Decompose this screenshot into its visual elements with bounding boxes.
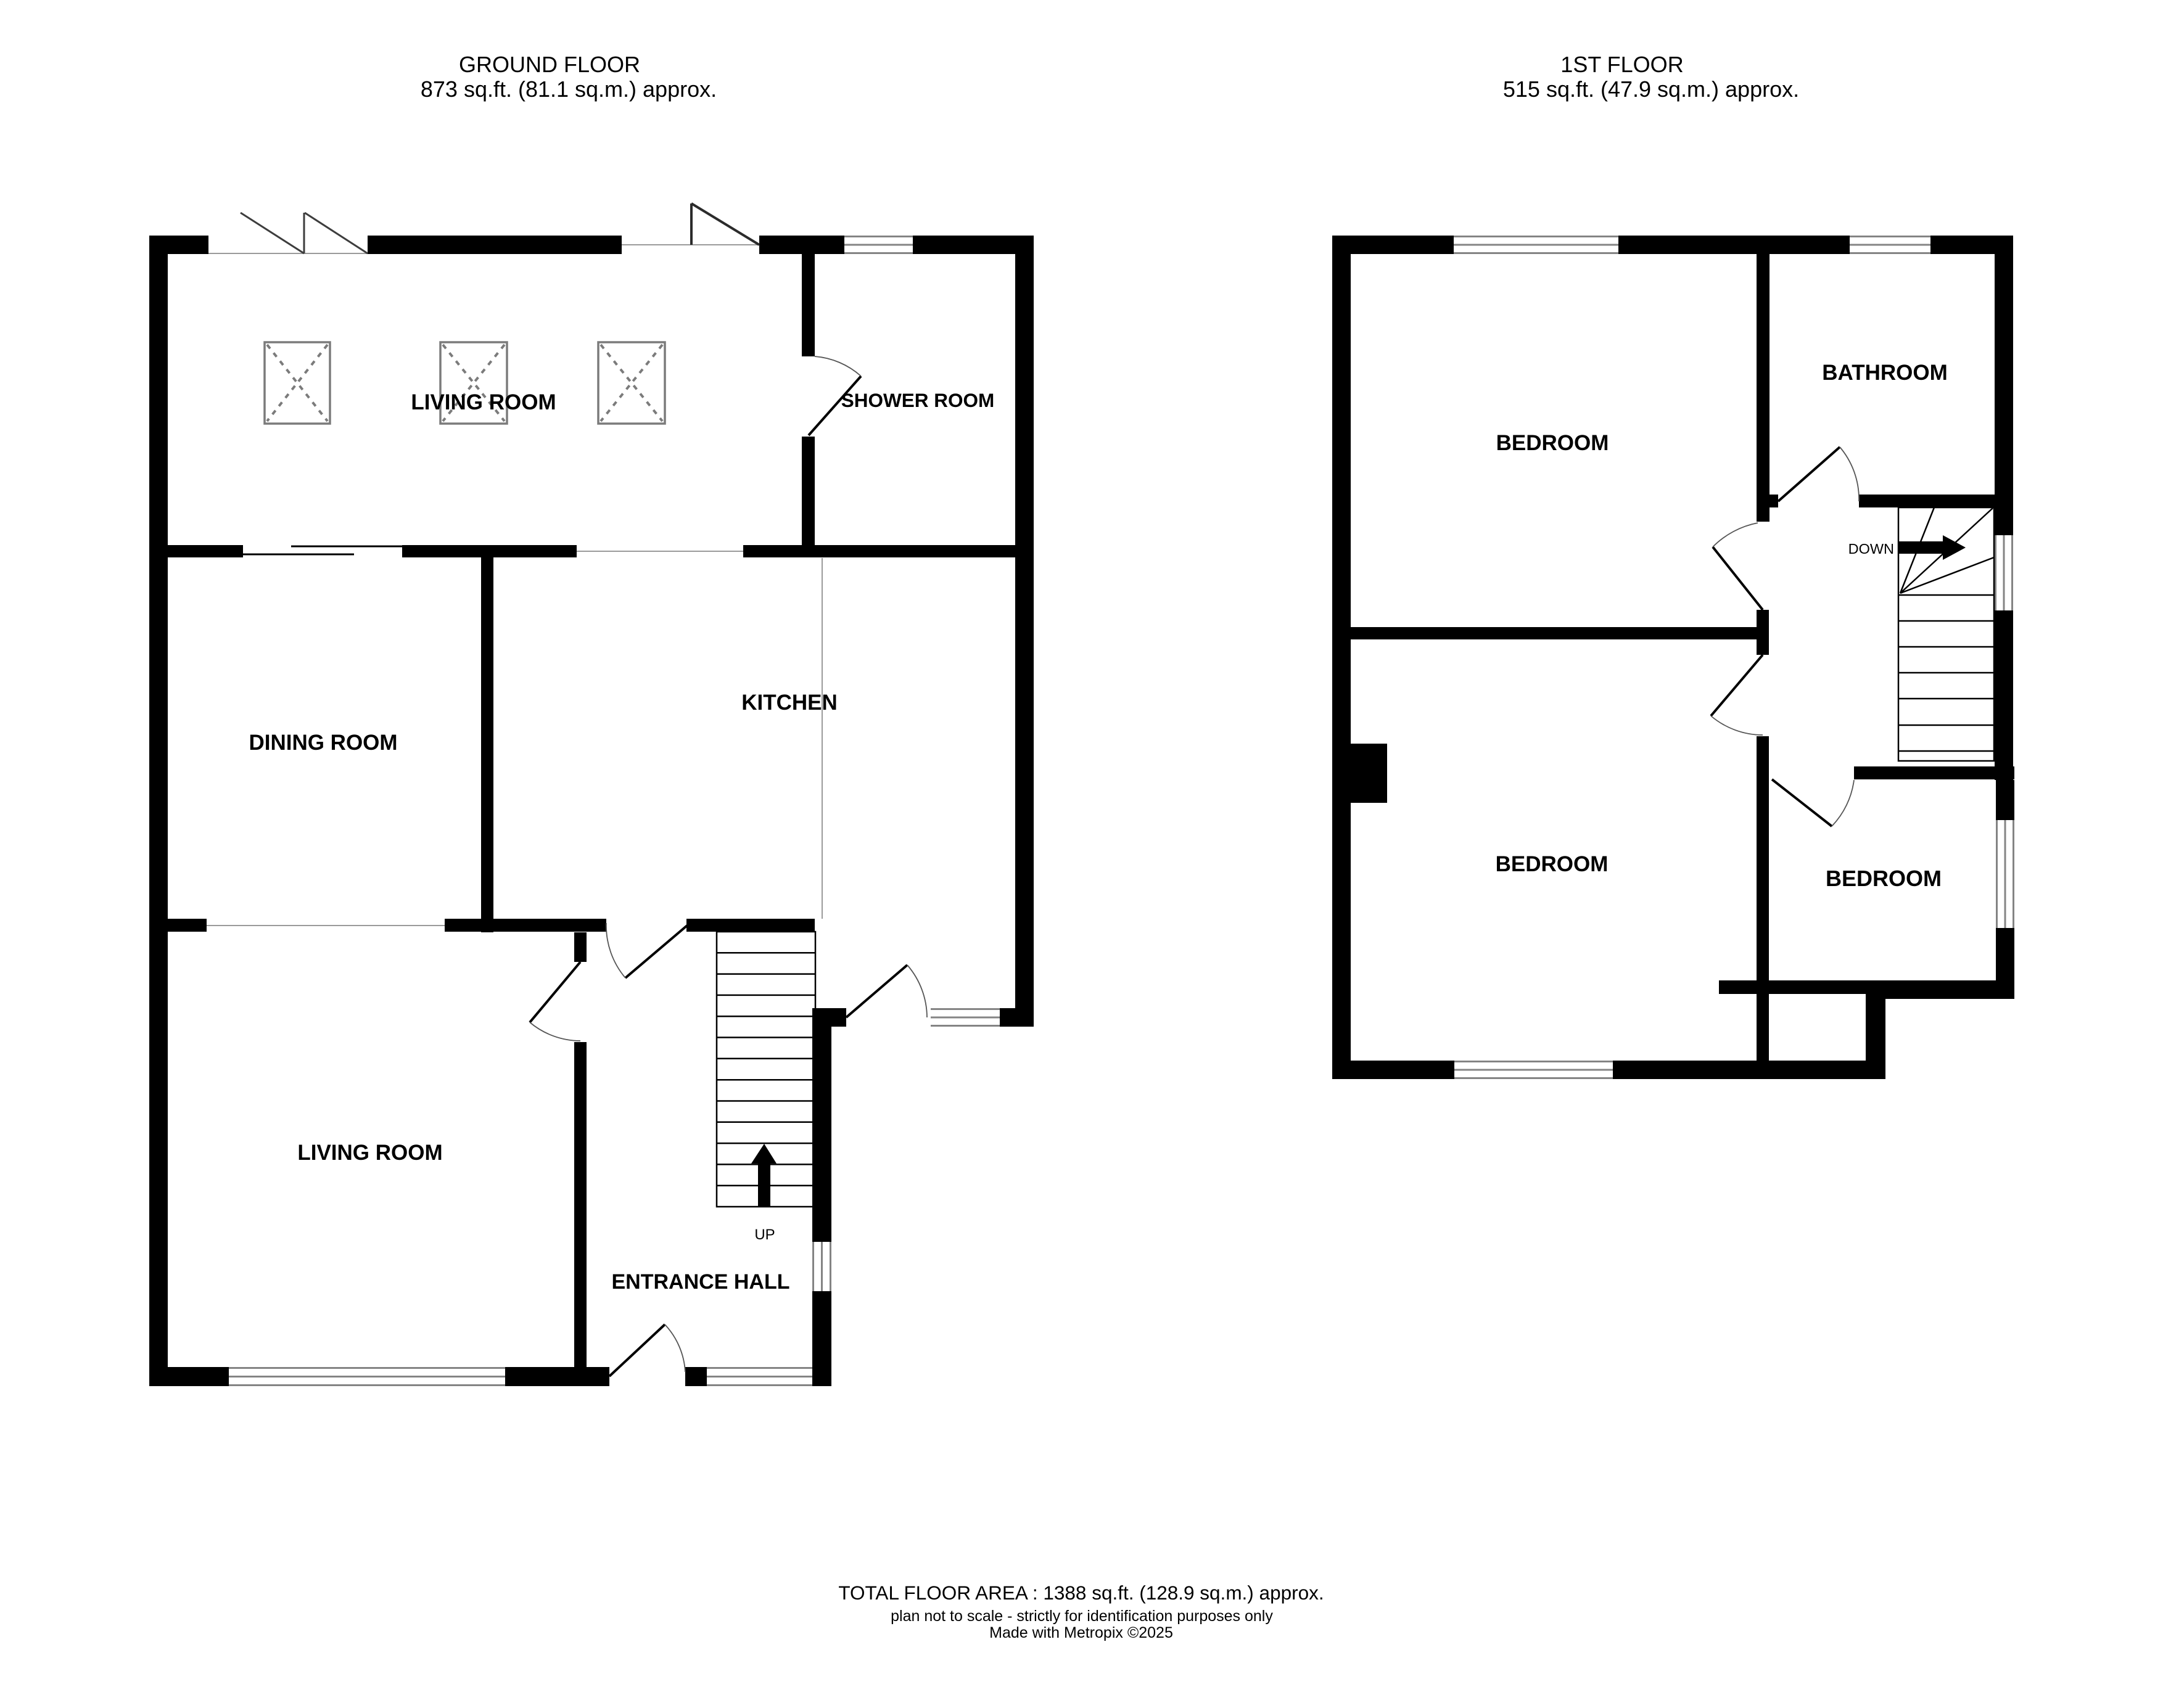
svg-text:BATHROOM: BATHROOM xyxy=(1822,361,1948,385)
svg-text:LIVING ROOM: LIVING ROOM xyxy=(411,390,556,414)
svg-text:1ST FLOOR: 1ST FLOOR xyxy=(1560,52,1683,77)
svg-text:ENTRANCE HALL: ENTRANCE HALL xyxy=(612,1270,790,1294)
svg-text:SHOWER ROOM: SHOWER ROOM xyxy=(841,389,995,411)
svg-text:GROUND FLOOR: GROUND FLOOR xyxy=(459,52,640,77)
svg-text:BEDROOM: BEDROOM xyxy=(1826,866,1942,891)
svg-text:UP: UP xyxy=(754,1226,775,1243)
svg-text:TOTAL FLOOR AREA : 1388 sq.ft.: TOTAL FLOOR AREA : 1388 sq.ft. (128.9 sq… xyxy=(838,1582,1324,1604)
svg-text:DINING ROOM: DINING ROOM xyxy=(249,731,397,755)
svg-text:DOWN: DOWN xyxy=(1848,541,1894,557)
svg-text:873 sq.ft. (81.1 sq.m.) approx: 873 sq.ft. (81.1 sq.m.) approx. xyxy=(421,76,717,102)
svg-text:Made with Metropix ©2025: Made with Metropix ©2025 xyxy=(989,1624,1173,1641)
svg-text:KITCHEN: KITCHEN xyxy=(741,691,838,715)
svg-text:BEDROOM: BEDROOM xyxy=(1496,431,1609,455)
svg-text:BEDROOM: BEDROOM xyxy=(1496,852,1609,876)
svg-text:LIVING ROOM: LIVING ROOM xyxy=(297,1141,442,1165)
svg-text:515 sq.ft. (47.9 sq.m.) approx: 515 sq.ft. (47.9 sq.m.) approx. xyxy=(1503,76,1799,102)
svg-text:plan not to scale - strictly f: plan not to scale - strictly for identif… xyxy=(891,1607,1273,1625)
